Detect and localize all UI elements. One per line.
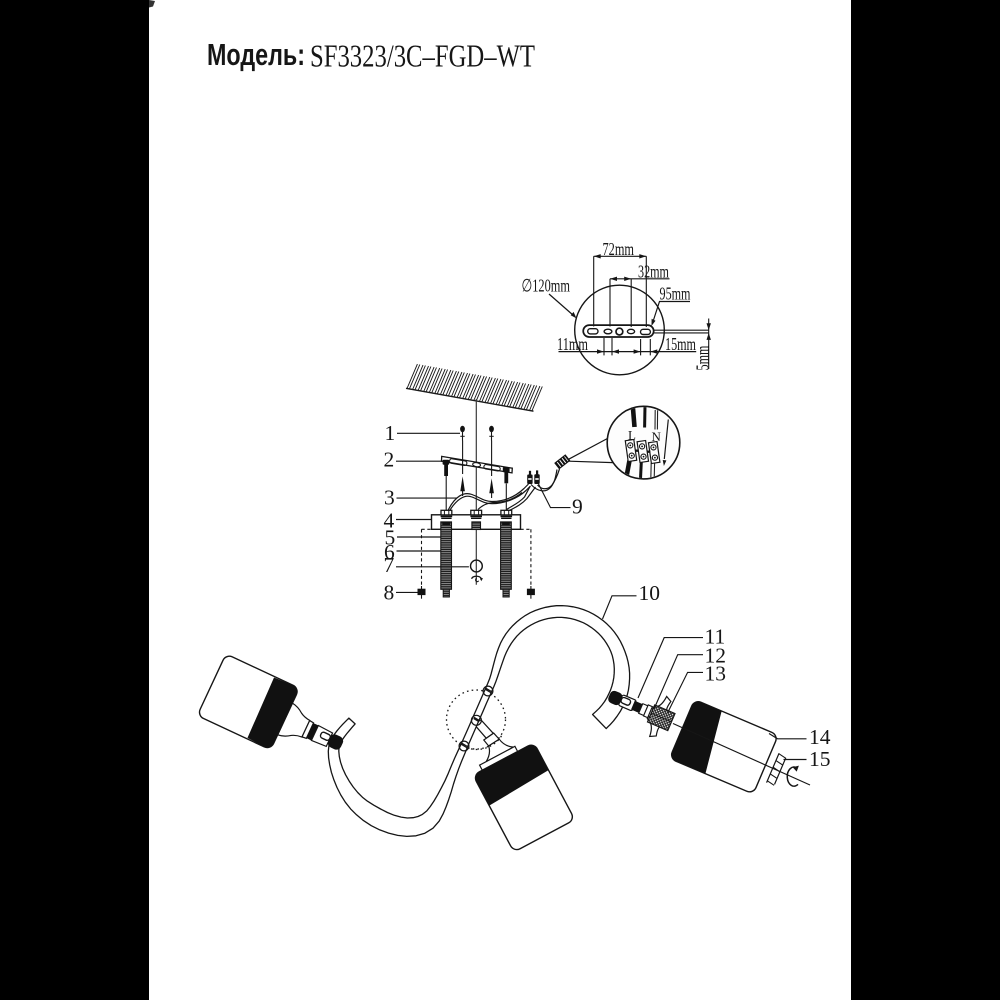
svg-text:13: 13 bbox=[705, 662, 727, 686]
svg-text:15: 15 bbox=[809, 747, 831, 771]
svg-text:10: 10 bbox=[639, 581, 661, 605]
svg-text:15mm: 15mm bbox=[665, 334, 696, 354]
svg-text:11mm: 11mm bbox=[557, 334, 588, 354]
svg-text:8: 8 bbox=[384, 581, 395, 605]
svg-text:SF3323/3C–FGD–WT: SF3323/3C–FGD–WT bbox=[310, 38, 535, 74]
svg-text:14: 14 bbox=[809, 725, 831, 749]
svg-text:2: 2 bbox=[384, 448, 395, 472]
svg-text:1: 1 bbox=[385, 421, 396, 445]
svg-text:Модель:: Модель: bbox=[207, 37, 305, 72]
svg-text:∅120mm: ∅120mm bbox=[522, 276, 571, 296]
svg-text:5mm: 5mm bbox=[693, 346, 713, 371]
svg-text:9: 9 bbox=[572, 495, 583, 519]
svg-text:95mm: 95mm bbox=[660, 284, 691, 304]
svg-text:72mm: 72mm bbox=[603, 239, 635, 259]
svg-text:32mm: 32mm bbox=[638, 262, 669, 282]
svg-text:N: N bbox=[652, 429, 662, 444]
svg-text:7: 7 bbox=[384, 553, 395, 577]
svg-text:3: 3 bbox=[384, 486, 395, 510]
svg-text:L: L bbox=[628, 428, 636, 443]
